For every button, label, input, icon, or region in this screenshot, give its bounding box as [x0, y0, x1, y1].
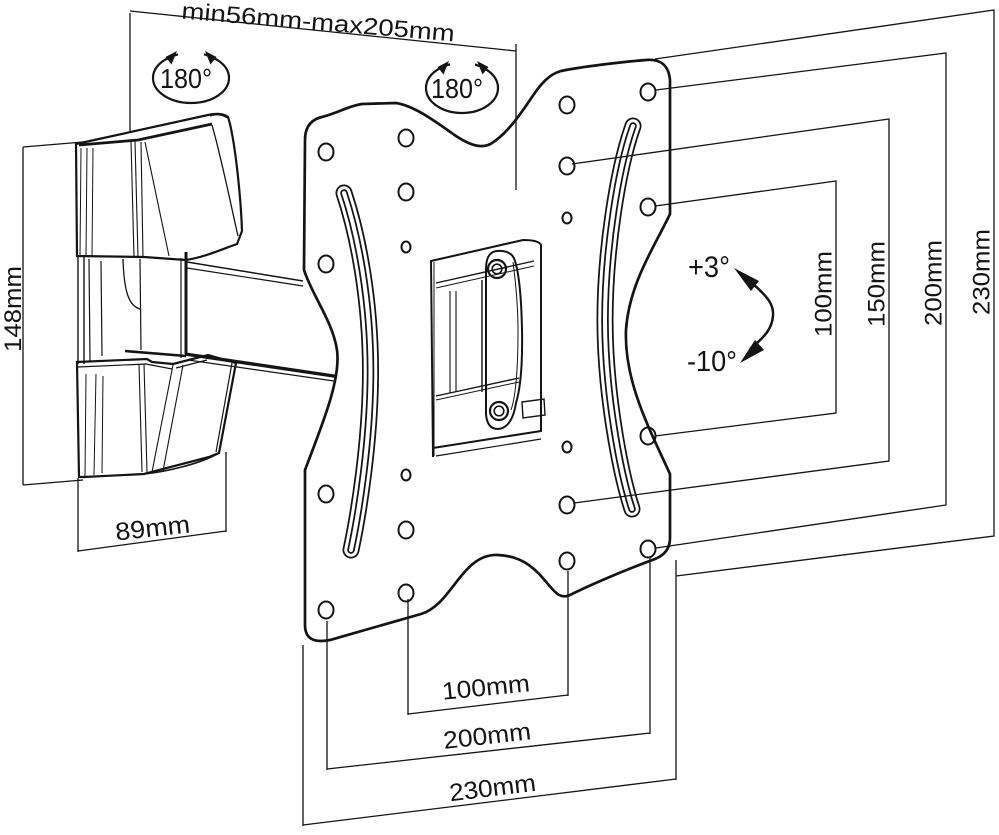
- svg-text:180°: 180°: [431, 73, 483, 104]
- svg-text:100mm: 100mm: [811, 251, 838, 337]
- svg-text:148mm: 148mm: [0, 266, 27, 352]
- svg-text:-10°: -10°: [687, 346, 737, 378]
- svg-text:200mm: 200mm: [921, 240, 948, 326]
- svg-text:180°: 180°: [160, 63, 212, 94]
- svg-text:150mm: 150mm: [864, 241, 891, 327]
- svg-text:230mm: 230mm: [969, 229, 996, 315]
- svg-text:+3°: +3°: [688, 251, 730, 284]
